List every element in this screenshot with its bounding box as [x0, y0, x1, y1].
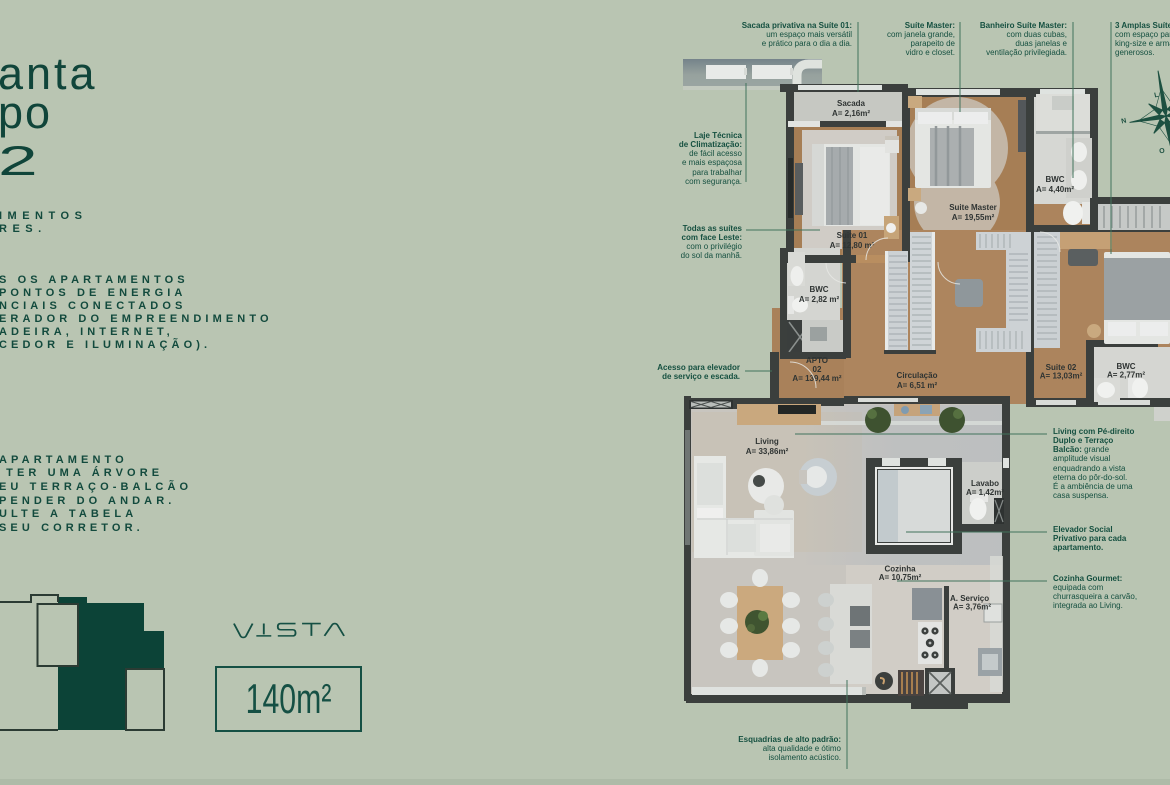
svg-text:O: O: [1159, 147, 1166, 155]
svg-text:Suite MasterA= 19,55m²: Suite MasterA= 19,55m²: [949, 203, 997, 222]
svg-text:CozinhaA= 10,75m²: CozinhaA= 10,75m²: [879, 565, 922, 583]
svg-text:Suite 02A= 13,03m²: Suite 02A= 13,03m²: [1040, 363, 1083, 381]
svg-text:CirculaçãoA= 6,51 m²: CirculaçãoA= 6,51 m²: [897, 371, 938, 390]
svg-text:LavaboA= 1,42m²: LavaboA= 1,42m²: [966, 479, 1004, 497]
svg-text:N: N: [1121, 118, 1127, 126]
svg-text:SacadaA= 2,16m²: SacadaA= 2,16m²: [832, 99, 870, 118]
svg-text:A. ServiçoA= 3,76m²: A. ServiçoA= 3,76m²: [950, 594, 991, 612]
